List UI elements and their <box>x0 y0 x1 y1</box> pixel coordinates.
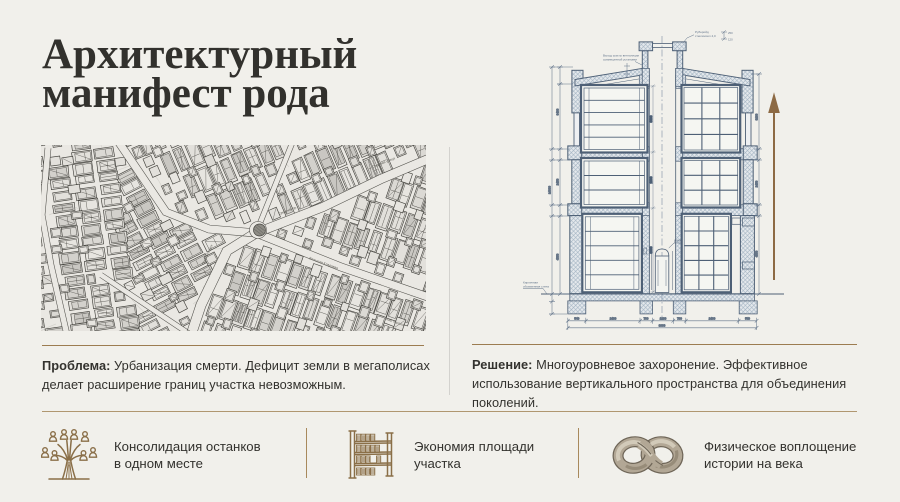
svg-text:2800: 2800 <box>649 176 653 183</box>
svg-text:3900: 3900 <box>649 246 653 253</box>
svg-text:540: 540 <box>745 317 750 321</box>
svg-text:700: 700 <box>677 317 682 321</box>
svg-text:14600: 14600 <box>548 186 552 194</box>
svg-text:2400: 2400 <box>709 317 716 321</box>
svg-text:совмещенной установки: совмещенной установки <box>603 57 637 61</box>
svg-text:обожженная стена: обожженная стена <box>523 284 549 288</box>
svg-text:3400: 3400 <box>556 108 560 115</box>
svg-text:3100: 3100 <box>755 113 759 120</box>
svg-text:540: 540 <box>574 317 579 321</box>
svg-text:2450: 2450 <box>556 178 560 185</box>
svg-text:2400: 2400 <box>610 317 617 321</box>
svg-text:4550: 4550 <box>755 250 759 257</box>
svg-text:1200: 1200 <box>660 317 667 321</box>
svg-text:2450: 2450 <box>755 180 759 187</box>
svg-text:стеклоизол 4,0: стеклоизол 4,0 <box>695 34 716 38</box>
svg-text:9900: 9900 <box>659 324 666 328</box>
svg-text:250: 250 <box>728 31 733 35</box>
svg-text:700: 700 <box>644 317 649 321</box>
svg-text:4550: 4550 <box>556 253 560 260</box>
svg-text:3300: 3300 <box>649 115 653 122</box>
svg-text:урна: урна <box>674 239 681 243</box>
svg-text:120: 120 <box>728 38 733 42</box>
